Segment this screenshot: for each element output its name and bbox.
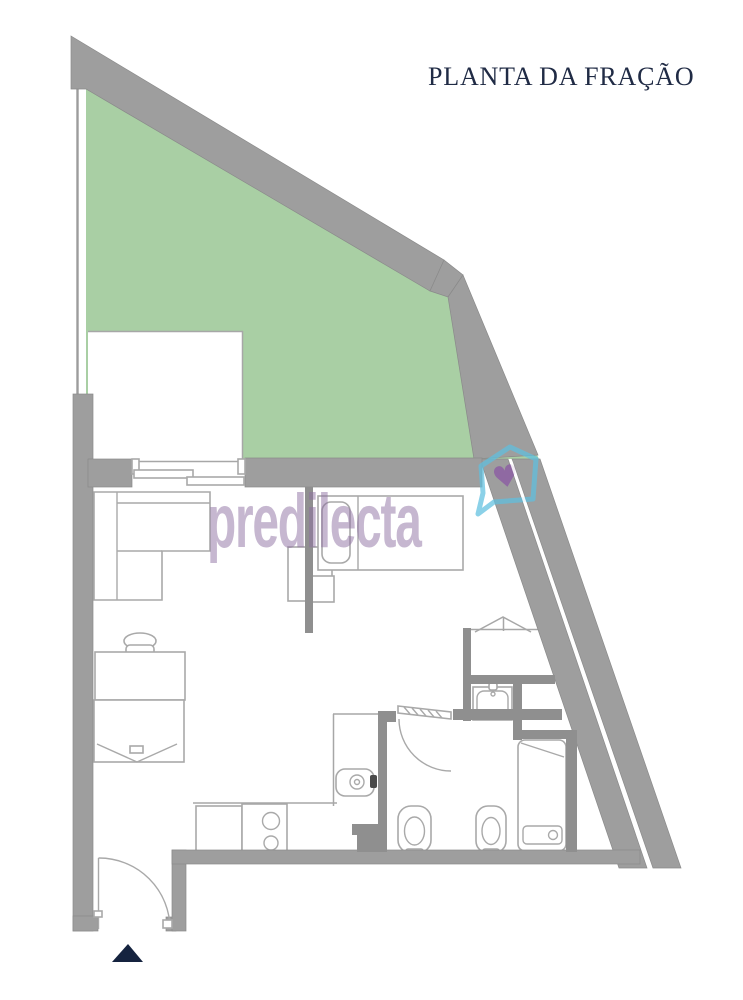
bidet xyxy=(476,806,506,853)
kitchen-cabinet xyxy=(196,806,242,851)
bedroom-furniture xyxy=(288,496,463,602)
sink-room-wall xyxy=(452,709,562,720)
sofa xyxy=(94,492,210,600)
toilet xyxy=(398,806,431,853)
desk xyxy=(95,652,185,700)
bed-pillow xyxy=(322,502,350,563)
wc-door-swing-arc xyxy=(399,719,451,771)
niche-stub-wall xyxy=(357,835,380,852)
sliding-door-post xyxy=(238,459,245,474)
sliding-door-panel xyxy=(187,477,244,485)
north-entrance-marker xyxy=(112,944,143,962)
shower-top-wall xyxy=(519,730,571,739)
terrace-facade-wall-left xyxy=(88,459,132,487)
floorplan-drawing: ♥ xyxy=(0,0,743,1000)
closet-divider-wall xyxy=(463,675,555,684)
living-room-furniture xyxy=(94,492,210,762)
terrace-facade-wall xyxy=(245,458,482,487)
bottom-wall xyxy=(172,850,640,864)
partition-wall xyxy=(305,487,313,633)
shower-stall xyxy=(518,740,566,851)
entry-door-jamb xyxy=(94,911,102,917)
page-title: PLANTA DA FRAÇÃO xyxy=(428,62,673,92)
kitchen-furniture xyxy=(193,714,378,851)
bottom-left-wall xyxy=(73,916,98,931)
closet-room-wall xyxy=(463,628,471,721)
niche-stub-wall xyxy=(352,824,380,835)
closet-handle xyxy=(130,746,143,753)
entry-door-swing-arc xyxy=(99,858,171,929)
floorplan-page: ♥ PLANTA DA FRAÇÃO predilecta xyxy=(0,0,743,1000)
entry-door-jamb xyxy=(163,920,172,928)
sliding-door-panel xyxy=(134,470,193,478)
water-heater-knob xyxy=(370,775,377,788)
terrace-cutout xyxy=(88,331,243,459)
sink-faucet xyxy=(489,683,497,690)
shower-right-wall xyxy=(566,730,577,852)
